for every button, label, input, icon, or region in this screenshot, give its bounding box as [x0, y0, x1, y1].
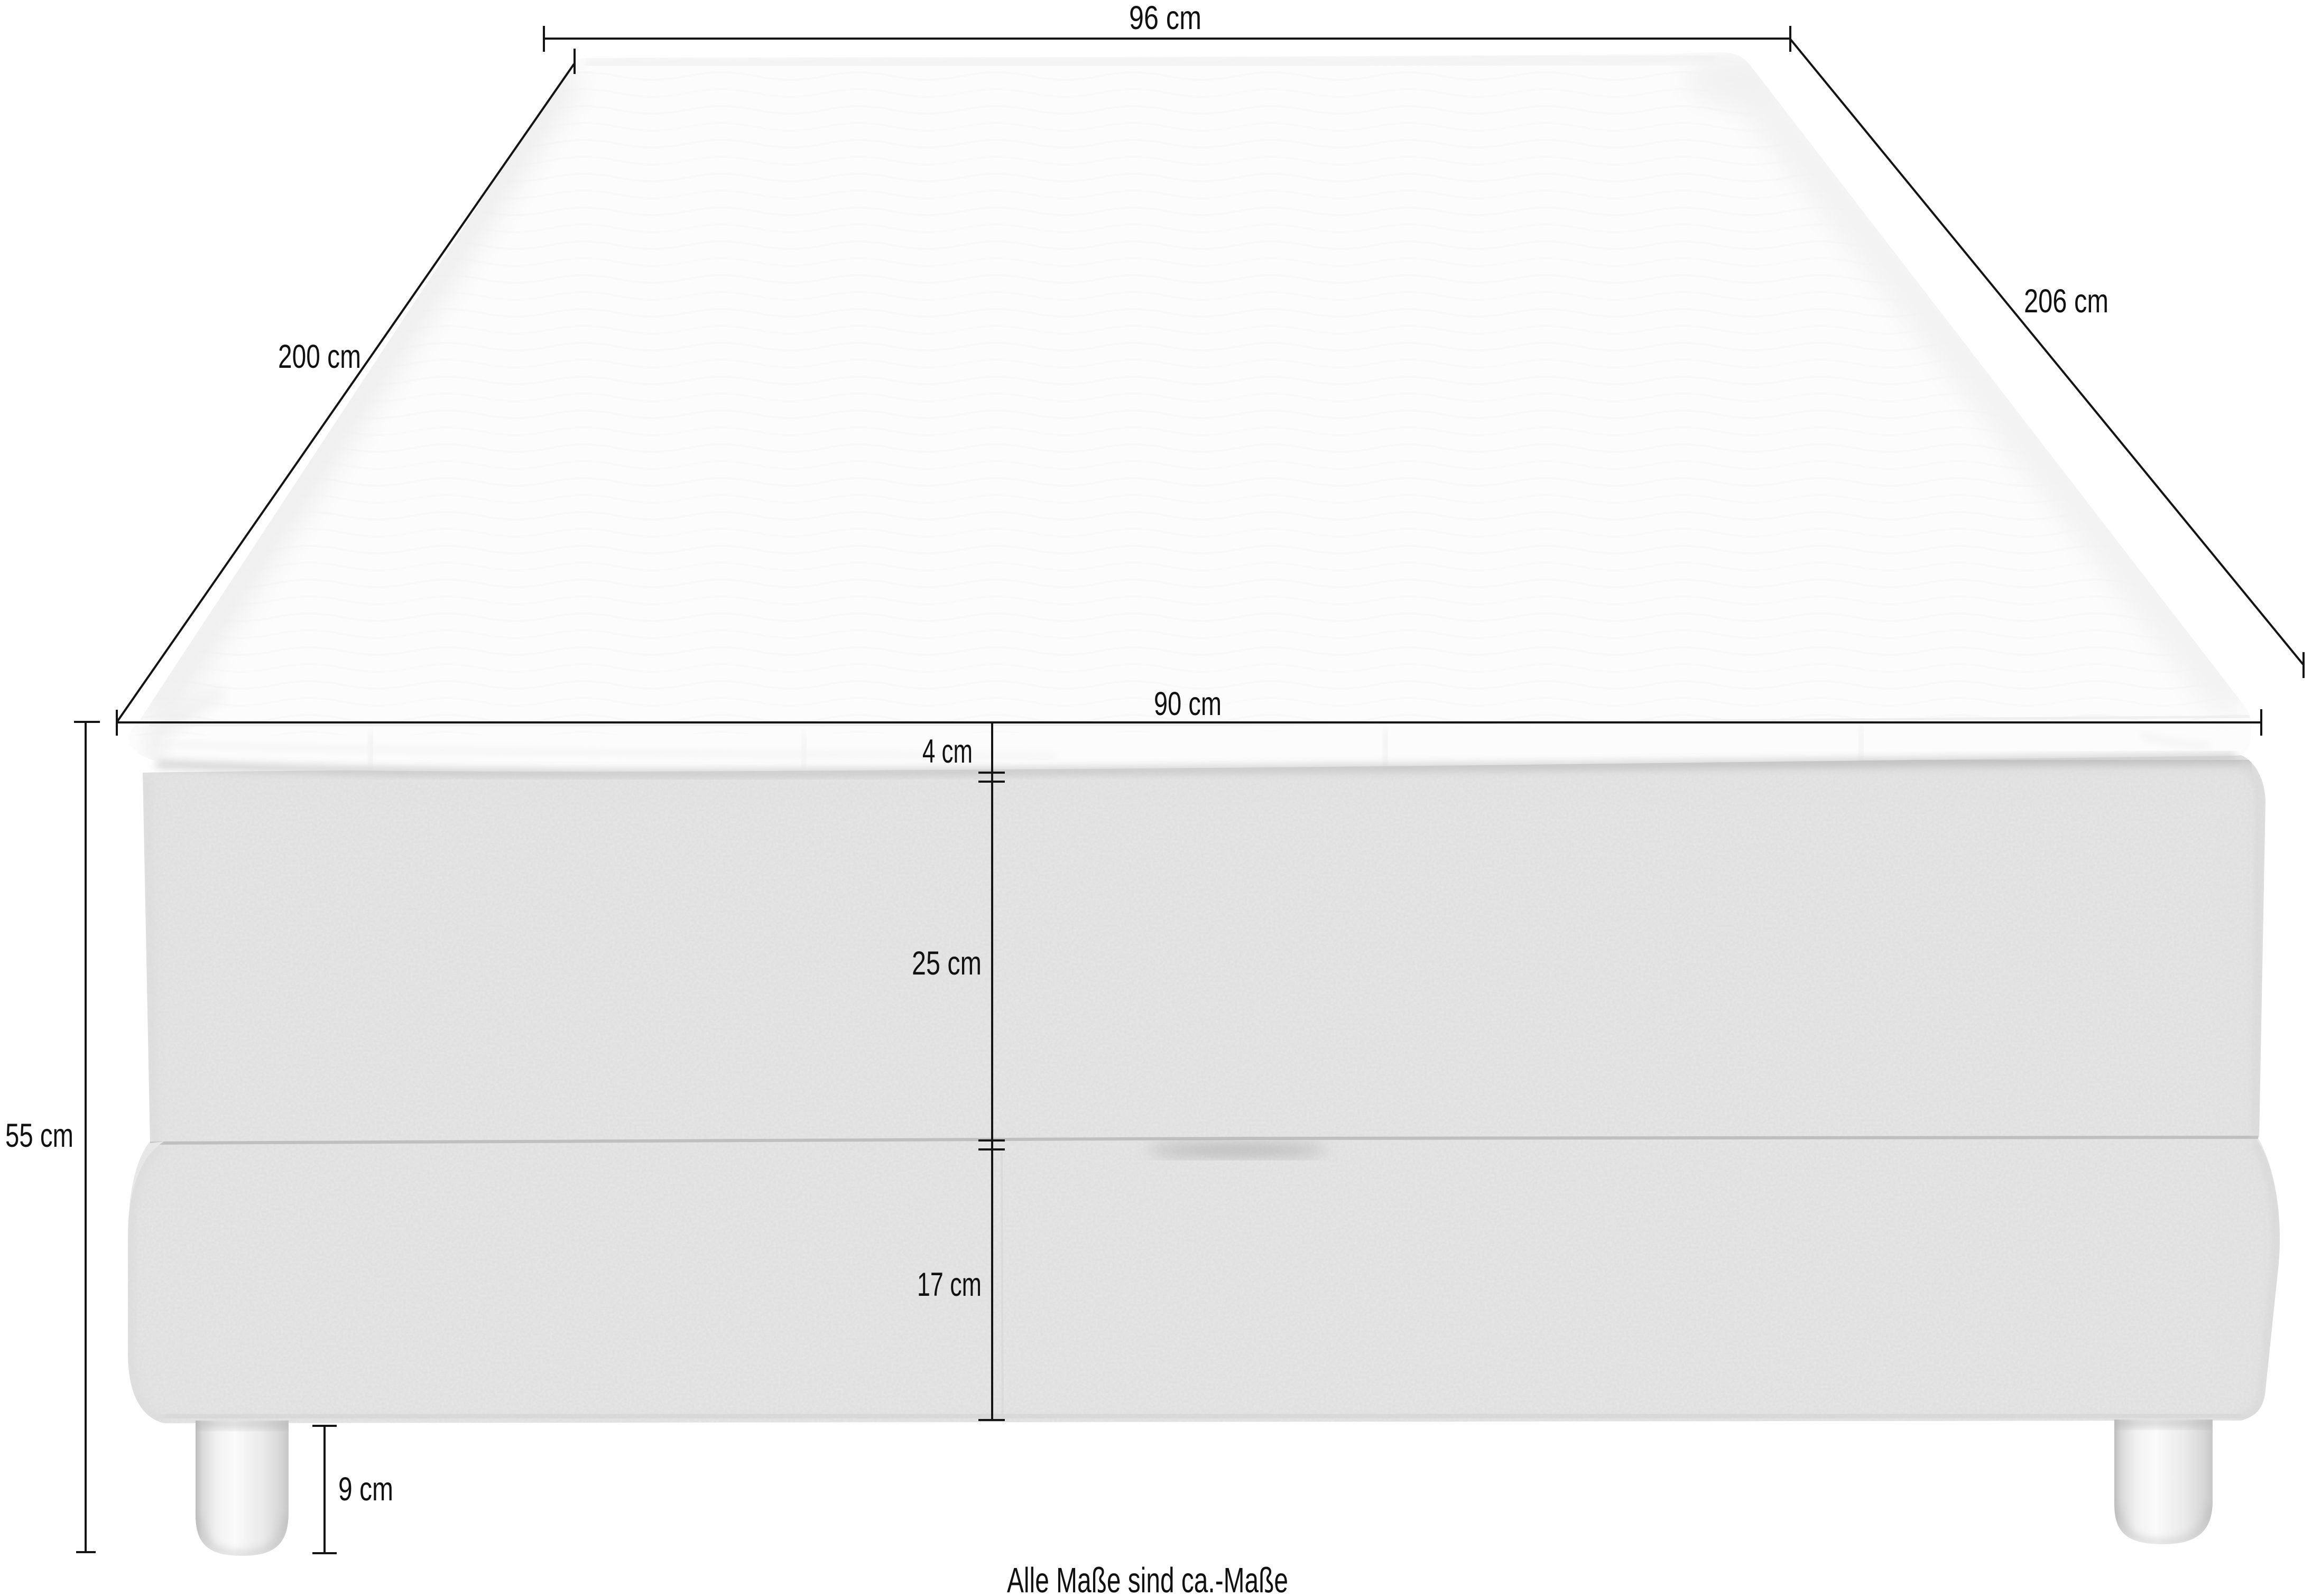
- svg-text:25 cm: 25 cm: [912, 945, 982, 982]
- svg-text:96 cm: 96 cm: [1129, 0, 1201, 36]
- svg-text:206 cm: 206 cm: [2024, 283, 2108, 320]
- svg-text:200 cm: 200 cm: [278, 338, 361, 375]
- svg-text:17 cm: 17 cm: [917, 1266, 982, 1303]
- svg-text:4 cm: 4 cm: [922, 733, 973, 770]
- svg-text:90 cm: 90 cm: [1154, 685, 1222, 722]
- svg-text:Alle Maße sind ca.-Maße: Alle Maße sind ca.-Maße: [1007, 1561, 1288, 1596]
- svg-text:55 cm: 55 cm: [5, 1117, 73, 1154]
- svg-text:9 cm: 9 cm: [338, 1471, 393, 1508]
